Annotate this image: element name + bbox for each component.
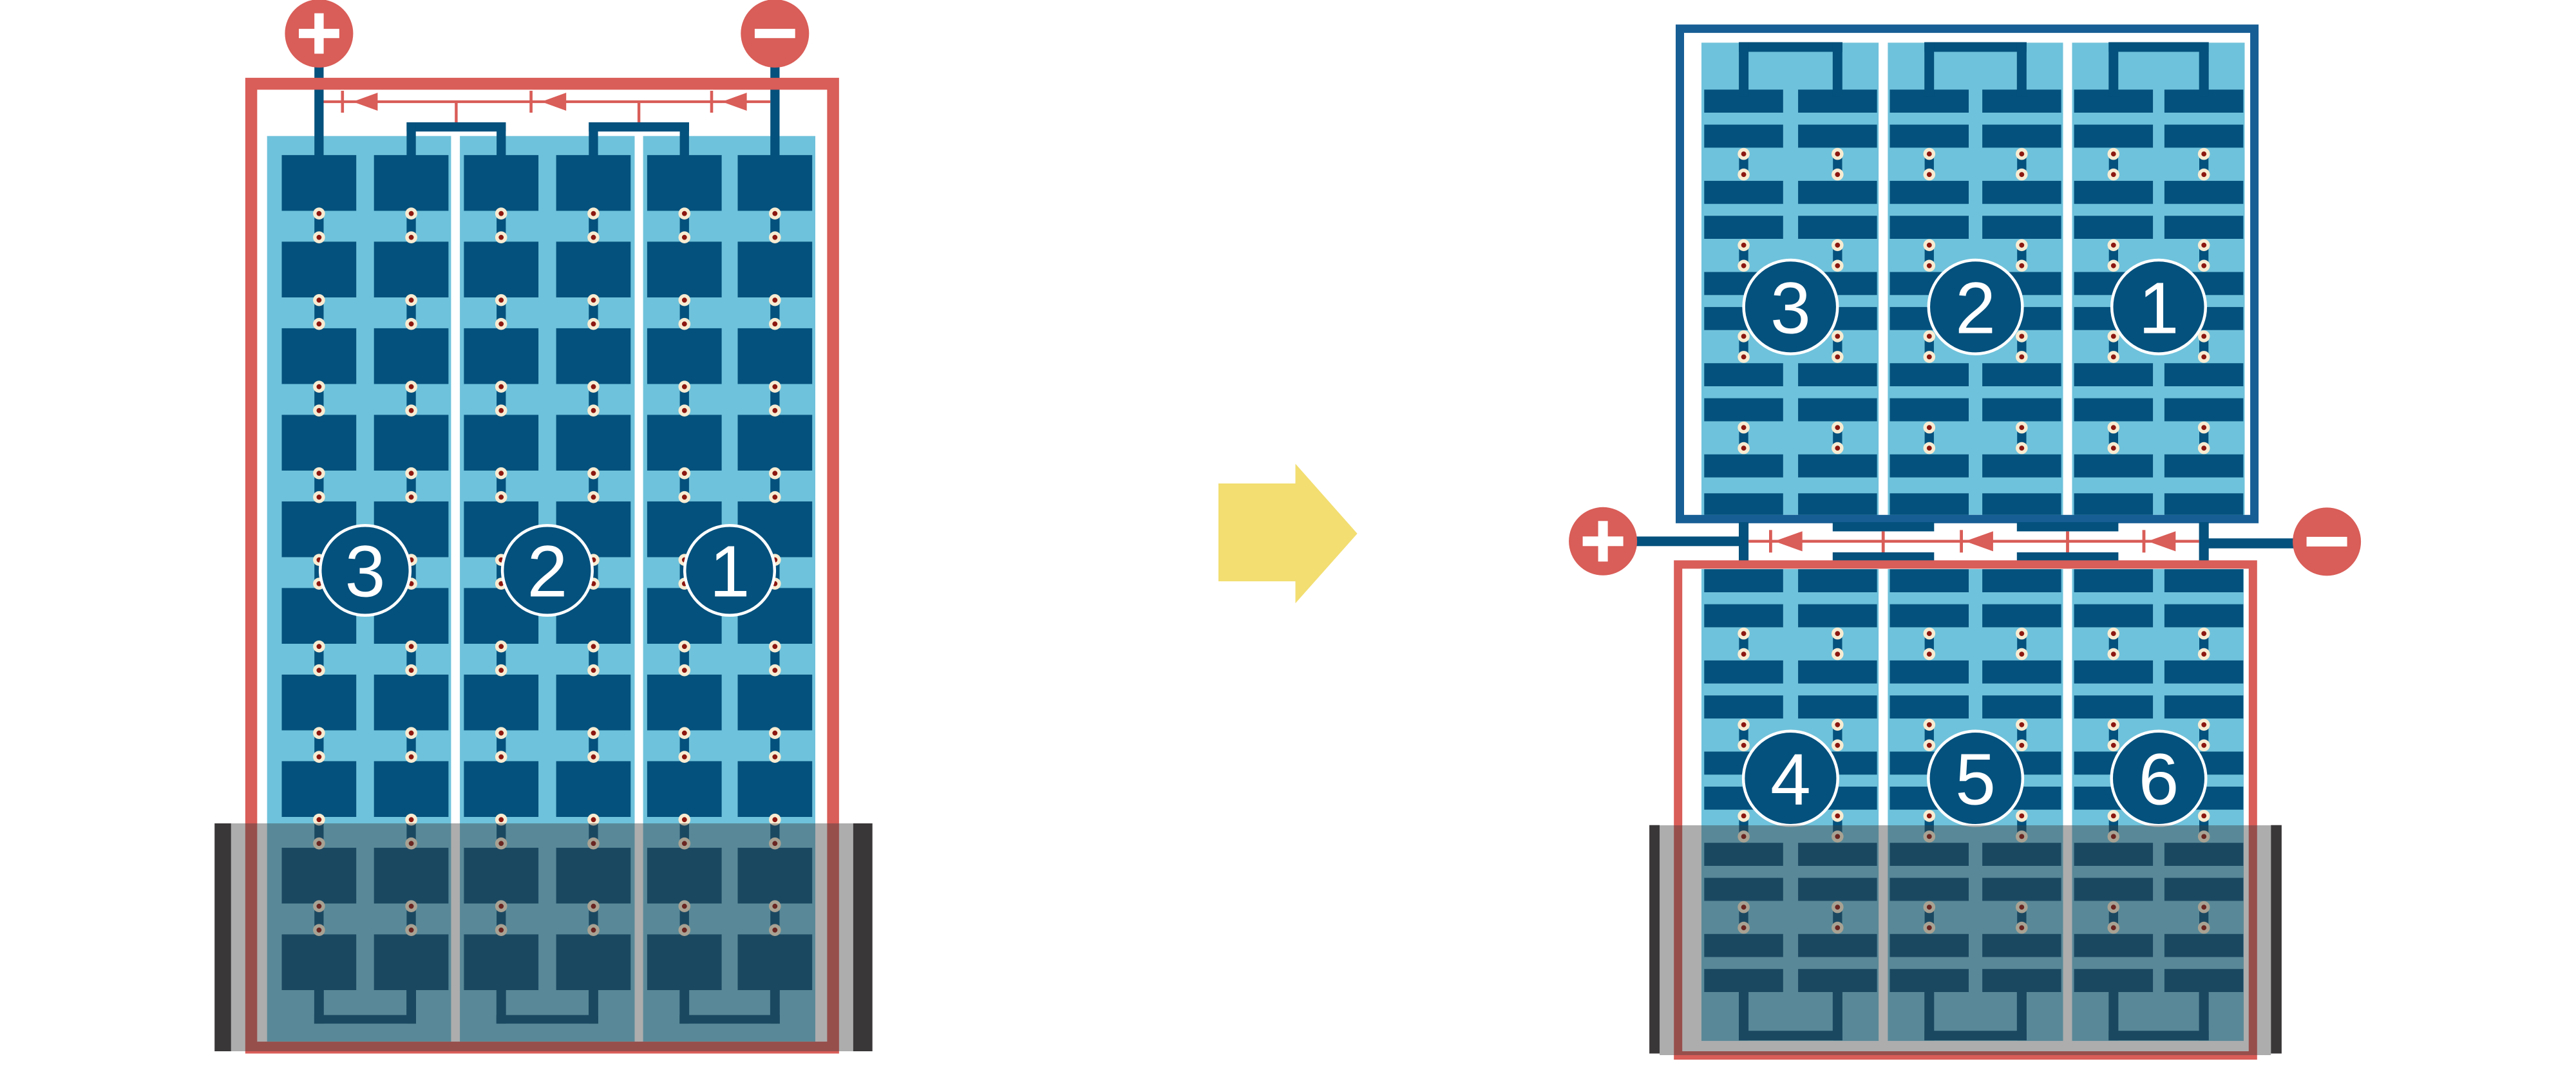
- svg-text:2: 2: [527, 531, 567, 612]
- svg-text:4: 4: [1770, 739, 1811, 820]
- svg-text:1: 1: [710, 531, 750, 612]
- svg-text:3: 3: [345, 531, 386, 612]
- svg-text:5: 5: [1955, 739, 1996, 820]
- svg-text:3: 3: [1770, 267, 1811, 348]
- svg-text:2: 2: [1955, 267, 1996, 348]
- svg-text:1: 1: [2139, 267, 2179, 348]
- svg-text:6: 6: [2139, 739, 2179, 820]
